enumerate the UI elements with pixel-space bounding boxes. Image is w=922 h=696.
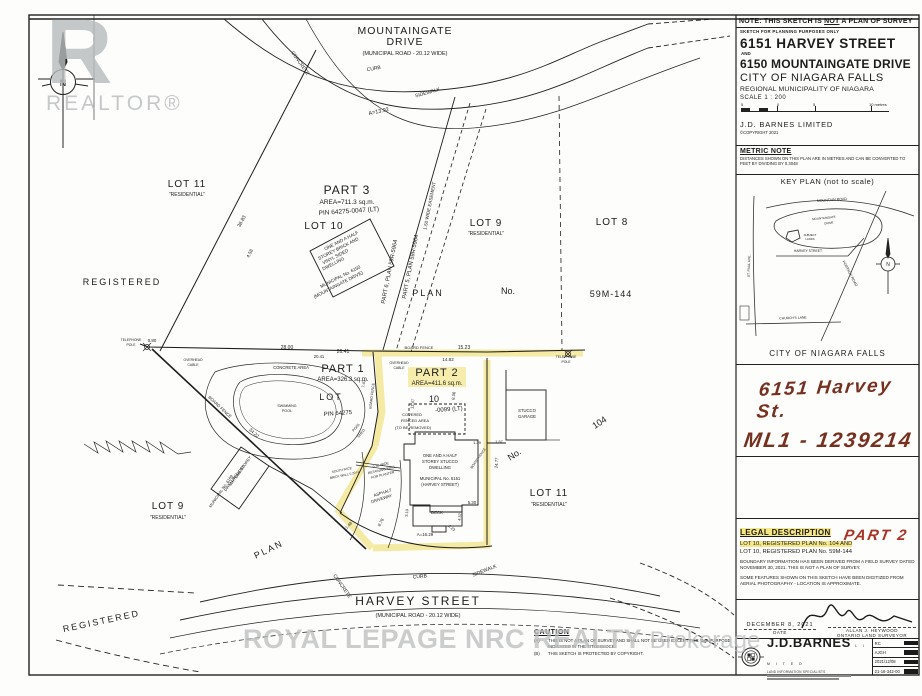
plan-label: CABLE	[187, 363, 199, 367]
table-cell: 21-16-342-00	[873, 669, 900, 674]
city-label: CITY OF NIAGARA FALLS	[736, 71, 919, 84]
plan-label: PART 2	[415, 367, 458, 379]
plan-label: POOL	[282, 409, 292, 413]
caution-block: CAUTION (A)THIS IS NOT A PLAN OF SURVEY …	[534, 629, 732, 657]
firm-footer: J.D.BARNES L I M I T E D LAND INFORMATIO…	[736, 638, 919, 675]
subject-lands-marker	[786, 230, 800, 242]
firm-wordmark: J.D.BARNES	[767, 635, 851, 650]
plan-label: PLAN	[252, 538, 285, 561]
plan-label: "RESIDENTIAL"	[468, 231, 505, 237]
metric-note: METRIC NOTE DISTANCES SHOWN ON THIS PLAN…	[736, 146, 919, 175]
metric-note-heading: METRIC NOTE	[736, 146, 919, 155]
plan-label: COVERED	[402, 412, 422, 417]
scale-tick: 5	[741, 102, 743, 107]
plan-label: CHURCH'S LANE	[779, 315, 807, 320]
table-cell: RC	[873, 641, 881, 646]
plan-label: (TO BE REMOVED)	[395, 425, 432, 430]
plan-label: CONCRETE	[289, 50, 310, 77]
legal-para-1: BOUNDARY INFORMATION HAS BEEN DERIVED FR…	[740, 559, 915, 571]
plan-label: 10	[429, 394, 439, 404]
scale-bar: 5 0 5 10 metres	[741, 103, 891, 115]
plan-label: POLE	[561, 360, 571, 364]
plan-label: 24.77	[494, 457, 500, 469]
plan-label: STOREY STUCCO	[422, 459, 459, 464]
plan-label: SHED	[356, 428, 366, 439]
plan-label: 20.41	[314, 354, 325, 359]
key-plan-caption: CITY OF NIAGARA FALLS	[736, 349, 919, 358]
plan-label: LOT 8	[596, 217, 629, 228]
plan-label: 0.80	[148, 338, 157, 343]
plan-label: 8.36	[451, 391, 457, 400]
plan-label: LOT 9	[152, 501, 185, 512]
plan-label: TELEPHONE	[556, 355, 577, 359]
dwelling-6151	[404, 432, 478, 512]
plan-label: HARVEY STREET	[355, 594, 481, 608]
plan-label: MOUNTAIN ROAD	[817, 197, 848, 203]
plan-label: 104	[590, 414, 608, 431]
signature-date: DECEMBER 8, 2021	[744, 622, 816, 628]
plan-label: No.	[506, 446, 523, 462]
plan-label: BOARD FENCE	[368, 382, 375, 409]
plan-label: (MUNICIPAL ROAD - 20.12 WIDE)	[363, 51, 448, 57]
plan-label: PIN 64275	[324, 410, 353, 418]
sketch-note: NOTE: THIS SKETCH IS NOT A PLAN OF SURVE…	[736, 15, 919, 28]
key-plan-heading: KEY PLAN (not to scale)	[736, 175, 919, 186]
table-cell: 2021/12/08	[873, 659, 896, 664]
plan-label: 14.82	[442, 357, 454, 362]
plan-label: AREA=711.3 sq.m.	[320, 199, 375, 206]
table-label-chip	[904, 669, 918, 674]
plan-label: DECK	[431, 510, 443, 515]
plan-label: 1.39	[473, 440, 482, 445]
plan-label: TELEPHONE	[121, 338, 142, 342]
plan-label: (MUNICIPAL ROAD - 20.12 WIDE)	[376, 613, 461, 619]
plan-label: POLE	[126, 343, 136, 347]
title-block-panel: NOTE: THIS SKETCH IS NOT A PLAN OF SURVE…	[736, 15, 919, 675]
plan-label: PART 3	[324, 183, 371, 197]
revision-table: RC AJGH 2021/12/08 21-16-342-00	[872, 639, 919, 675]
scale-label: SCALE 1 : 200	[736, 93, 919, 102]
plan-label: (HARVEY STREET)	[421, 482, 459, 487]
plan-label: REGISTERED	[62, 608, 141, 634]
table-label-chip	[904, 641, 918, 646]
address-line-1: 6151 HARVEY STREET	[736, 34, 919, 51]
plan-label: CABLE	[393, 366, 405, 370]
legal-line-1: LOT 10, REGISTERED PLAN No. 104 AND	[740, 541, 852, 547]
plan-label: -0099 (LT)	[435, 406, 463, 414]
plan-label: 7.43	[361, 379, 367, 388]
survey-sketch-sheet: MOUNTAINGATEDRIVE(MUNICIPAL ROAD - 20.12…	[0, 0, 922, 696]
plan-label: DWELLING	[429, 465, 451, 470]
plan-label: AREA=411.6 sq.m.	[412, 381, 463, 387]
legal-description: LEGAL DESCRIPTION LOT 10, REGISTERED PLA…	[736, 518, 919, 600]
plan-labels: MOUNTAINGATEDRIVE(MUNICIPAL ROAD - 20.12…	[60, 25, 633, 634]
plan-label: "RESIDENTIAL"	[169, 192, 206, 198]
plan-label: 1.57	[495, 440, 502, 444]
plan-label: LOT 9	[470, 218, 503, 229]
key-plan: KEY PLAN (not to scale)	[736, 175, 919, 364]
plan-label: 38.83	[237, 214, 248, 228]
plan-label: PORTAGE ROAD	[841, 260, 858, 288]
caution-heading: CAUTION	[534, 629, 732, 636]
legal-line-2: LOT 10, REGISTERED PLAN No. 59M-144	[740, 548, 915, 556]
plan-label: 4.57	[458, 513, 463, 521]
plan-label: ONE AND A HALF	[423, 453, 458, 458]
fine-print-line	[767, 678, 839, 680]
firm-tagline: LAND INFORMATION SPECIALISTS	[767, 670, 872, 674]
plan-label: A=16.29	[417, 532, 434, 537]
signature-block: DECEMBER 8, 2021 DATE ALLAN J. HEYWOOD O…	[736, 600, 919, 638]
handwritten-annotation-box: 6151 Harvey St. ML1 - 1239214	[736, 364, 919, 457]
table-label-chip	[904, 660, 918, 665]
plan-label: 5.30	[468, 500, 477, 505]
plan-label: DRIVE	[824, 221, 834, 226]
plan-label: SWIMMING	[277, 404, 296, 408]
metric-note-body: DISTANCES SHOWN ON THIS PLAN ARE IN METR…	[736, 155, 919, 169]
plan-label: PART 1	[321, 363, 364, 375]
plan-label: 28.00	[281, 345, 294, 351]
plan-label: "RESIDENTIAL"	[150, 515, 187, 521]
handwritten-address: 6151 Harvey St.	[755, 374, 921, 424]
key-plan-labels: MOUNTAIN ROADMOUNTAINGATEDRIVESUBJECTLAN…	[747, 197, 891, 321]
plan-label: STUCCO	[518, 408, 536, 413]
north-arrow-icon	[38, 32, 95, 148]
handwritten-part2: PART 2	[843, 527, 910, 544]
handwritten-mls-number: ML1 - 1239214	[742, 429, 920, 453]
caution-item-text: THIS SKETCH IS PROTECTED BY COPYRIGHT.	[548, 651, 644, 657]
mountaingate-drive-road	[224, 19, 730, 129]
plan-label: "RESIDENTIAL"	[531, 502, 568, 508]
plan-label: CONCRETE AREA	[273, 365, 309, 370]
plan-label: DRIVE	[386, 36, 423, 48]
hedge-line	[84, 441, 191, 454]
firm-name: J.D. BARNES LIMITED	[736, 118, 919, 129]
plan-label: OVERHEAD	[389, 361, 409, 365]
plan-label: A=13.92	[368, 107, 389, 117]
plan-label: LOT	[319, 392, 343, 402]
plan-label: GARAGE	[518, 414, 536, 419]
legal-description-heading: LEGAL DESCRIPTION	[740, 528, 831, 537]
caution-item-marker: (B)	[534, 651, 548, 657]
plan-label: 11.47	[409, 398, 415, 409]
plan-label: CURB	[366, 65, 382, 73]
plan-label: REGISTERED	[83, 277, 162, 287]
plan-label: 34.22	[248, 427, 260, 439]
plan-label: PIN 64275-0047 (LT)	[318, 206, 379, 217]
table-cell: AJGH	[873, 650, 886, 655]
plan-label: 26.41	[337, 349, 350, 355]
plan-label: SIDEWALK	[472, 563, 499, 578]
plan-label: MUNICIPAL No. 6151	[420, 476, 461, 481]
key-plan-map: MOUNTAIN ROADMOUNTAINGATEDRIVESUBJECTLAN…	[736, 186, 919, 344]
plan-label: N	[886, 262, 890, 268]
plan-label: PLAN	[412, 288, 444, 298]
title-block: NOTE: THIS SKETCH IS NOT A PLAN OF SURVE…	[736, 15, 919, 146]
fine-print-line	[767, 675, 851, 677]
caution-item-text: THIS IS NOT A PLAN OF SURVEY AND SHALL N…	[548, 638, 732, 649]
plan-label: LOT 11	[530, 488, 568, 499]
plan-label: LOT 10	[304, 221, 343, 232]
plan-label: LOT 11	[168, 179, 206, 190]
jd-barnes-logo-icon	[738, 644, 764, 670]
region-label: REGIONAL MUNICIPALITY OF NIAGARA	[736, 84, 919, 93]
plan-label: OVERHEAD	[183, 358, 203, 362]
legal-para-2: SOME FEATURES SHOWN ON THIS SKETCH HAVE …	[740, 575, 915, 587]
address-line-2: 6150 MOUNTAINGATE DRIVE	[736, 56, 919, 71]
plan-label: BOARD FENCE	[207, 395, 233, 419]
plan-label: 3.10	[405, 509, 410, 517]
plan-label: 59M-144	[590, 289, 633, 299]
plan-label: 4.58	[245, 248, 254, 259]
plan-label: 15.23	[458, 345, 471, 351]
caution-item-marker: (A)	[534, 638, 548, 649]
table-label-chip	[904, 650, 918, 655]
plan-label: 1.50 WIDE EASEMENT	[422, 181, 436, 230]
plan-label: HARVEY STREET	[794, 249, 822, 253]
plan-label: SIDEWALK	[415, 86, 442, 99]
plan-label: BOARD FENCE	[405, 345, 434, 350]
plan-label: 2.23	[448, 524, 456, 532]
plan-label: CURB	[413, 573, 428, 580]
deck	[413, 506, 462, 526]
plan-label: ST. PAUL AVE.	[747, 255, 752, 278]
plan-label: 8.76	[377, 517, 386, 527]
plan-label: No.	[501, 286, 515, 296]
copyright: ©COPYRIGHT 2021	[736, 129, 919, 137]
plan-label: FENCED AREA	[401, 418, 430, 423]
plan-label: LANDS	[805, 237, 814, 241]
plan-label: N	[60, 78, 67, 88]
